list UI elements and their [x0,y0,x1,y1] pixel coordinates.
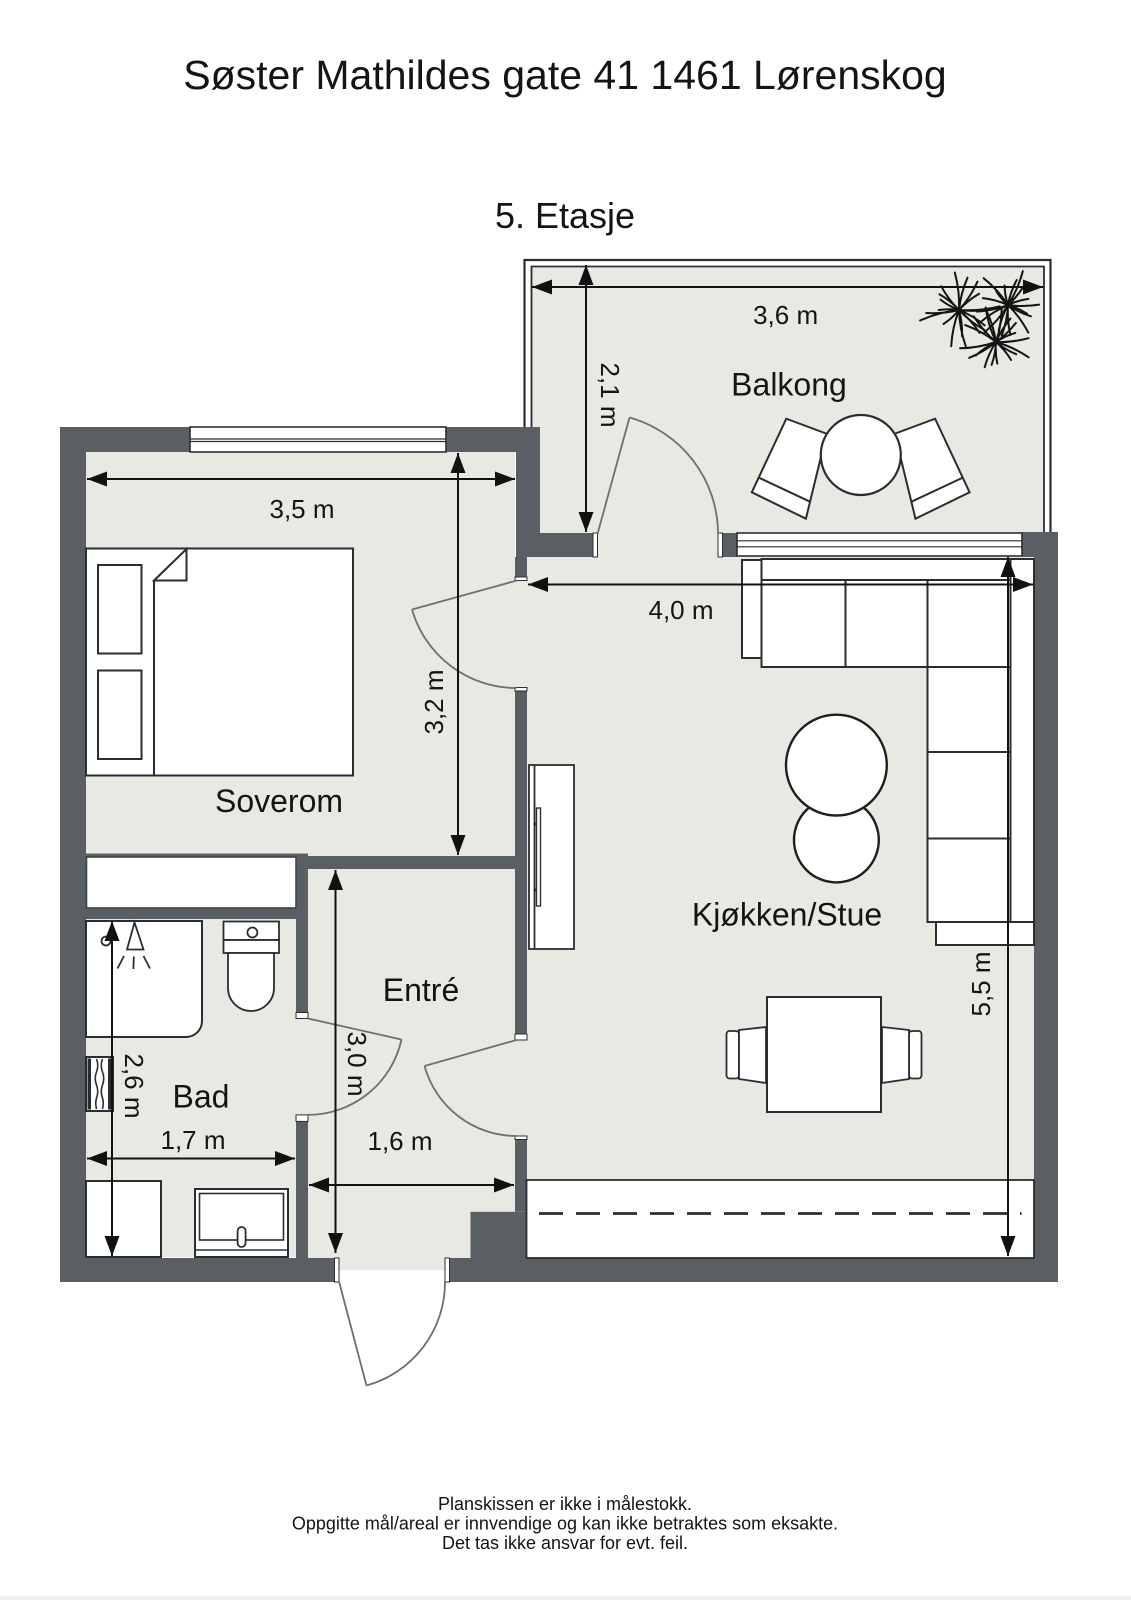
svg-text:Soverom: Soverom [215,783,343,819]
svg-text:3,6 m: 3,6 m [753,300,818,330]
svg-text:1,6 m: 1,6 m [367,1126,432,1156]
svg-text:1,7 m: 1,7 m [160,1125,225,1155]
svg-text:Entré: Entré [383,972,459,1008]
svg-text:3,2 m: 3,2 m [419,669,449,734]
svg-text:Balkong: Balkong [731,367,847,403]
svg-text:5,5 m: 5,5 m [966,951,996,1016]
svg-text:5. Etasje: 5. Etasje [495,195,635,236]
svg-text:Oppgitte mål/areal er innvendi: Oppgitte mål/areal er innvendige og kan … [292,1514,838,1534]
svg-text:3,0 m: 3,0 m [342,1031,372,1096]
svg-text:2,1 m: 2,1 m [595,362,625,427]
svg-text:4,0 m: 4,0 m [648,595,713,625]
svg-text:Kjøkken/Stue: Kjøkken/Stue [692,897,882,933]
svg-text:Planskissen er ikke i målestok: Planskissen er ikke i målestokk. [438,1494,692,1514]
svg-text:Det tas ikke ansvar for evt. f: Det tas ikke ansvar for evt. feil. [442,1533,688,1553]
svg-text:2,6 m: 2,6 m [119,1053,149,1118]
svg-text:Søster Mathildes gate 41 1461: Søster Mathildes gate 41 1461 Lørenskog [183,52,947,98]
svg-text:Bad: Bad [173,1079,230,1115]
svg-text:3,5 m: 3,5 m [269,494,334,524]
